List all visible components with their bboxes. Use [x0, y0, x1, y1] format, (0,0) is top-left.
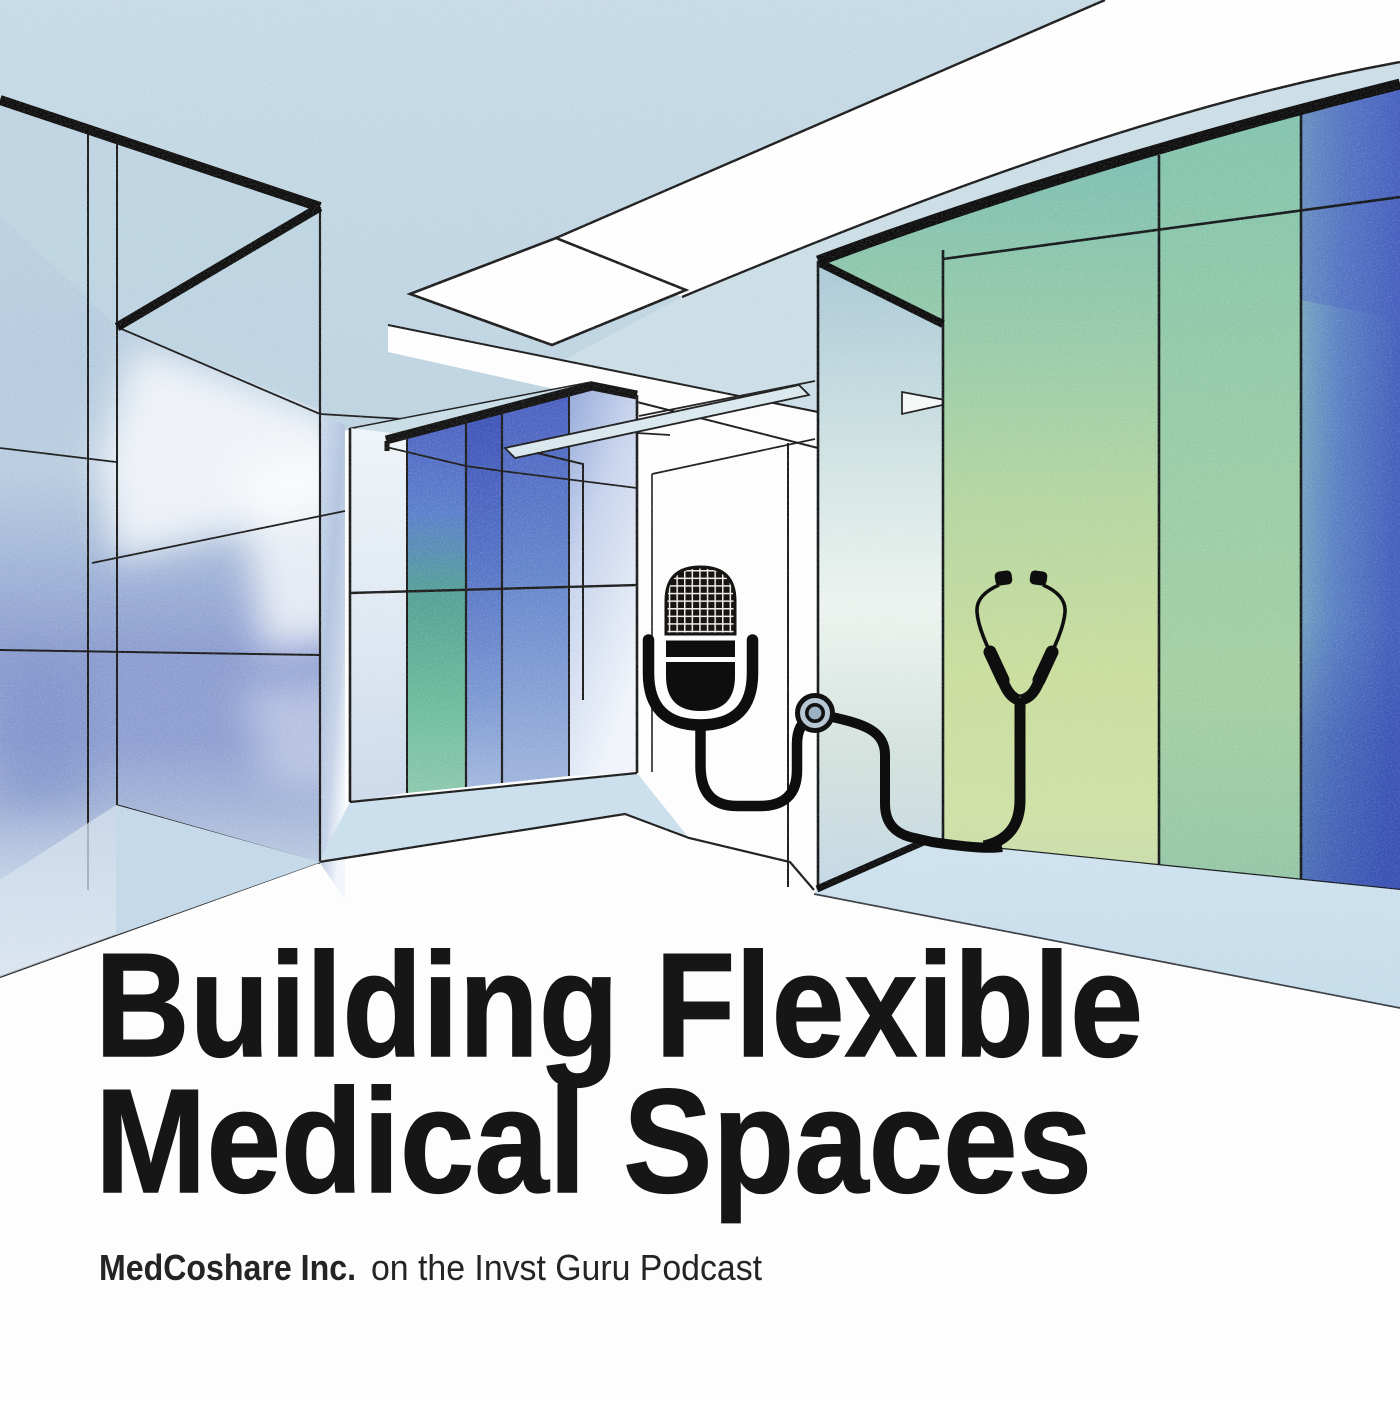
svg-text:MedCoshare Inc.on the Invst Gu: MedCoshare Inc.on the Invst Guru Podcast [99, 1247, 762, 1288]
svg-text:Medical Spaces: Medical Spaces [95, 1059, 1092, 1224]
